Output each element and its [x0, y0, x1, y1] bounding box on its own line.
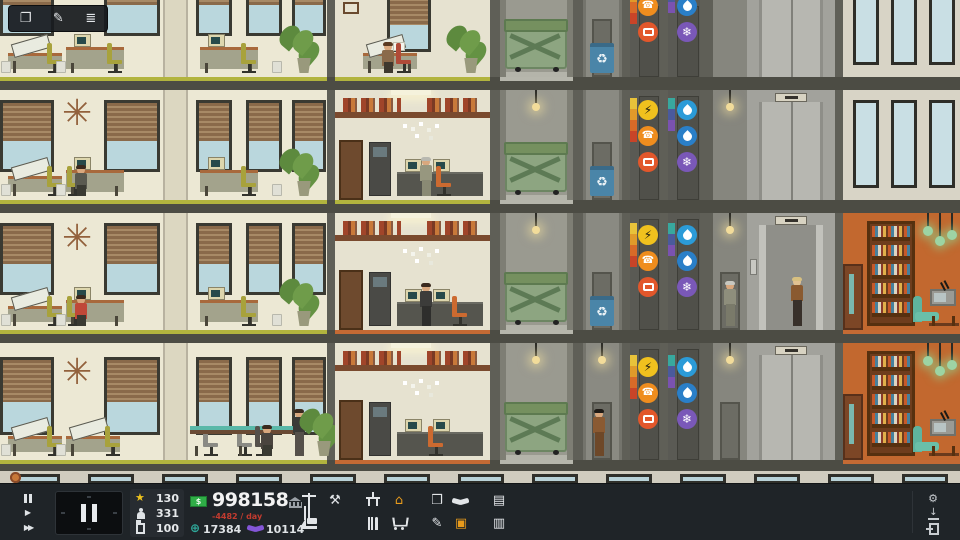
utility-riser-water[interactable]: ❄	[668, 343, 700, 460]
office-door	[339, 270, 363, 330]
ceiling-lamp	[391, 343, 431, 348]
worker-standing[interactable]	[419, 284, 433, 326]
conference-table	[190, 426, 294, 456]
book-row	[872, 302, 910, 317]
cable-tv-icon	[638, 409, 658, 429]
window	[104, 223, 160, 295]
floors-stat[interactable]: 100	[130, 521, 184, 535]
floor-indicator	[775, 346, 807, 355]
water-icon	[677, 100, 697, 120]
partial-floor-below	[0, 471, 960, 483]
palm-plant	[451, 29, 491, 73]
studio-office[interactable]	[335, 0, 490, 77]
utility-stripes	[668, 355, 675, 388]
office-door	[339, 400, 363, 460]
dumpster	[505, 148, 567, 192]
population-stat[interactable]: 331	[130, 506, 184, 520]
book-row	[872, 356, 910, 371]
facade-window	[853, 100, 879, 188]
desk-run	[397, 302, 483, 326]
pause-icon	[24, 494, 32, 503]
water-icon	[677, 225, 697, 245]
power-icon: ⚡	[638, 100, 658, 120]
book-row	[872, 375, 910, 390]
window	[246, 100, 282, 172]
office-chair	[240, 296, 258, 326]
palm-plant	[284, 282, 324, 326]
elevator-call-panel[interactable]	[750, 259, 757, 275]
pendant-light	[951, 213, 953, 231]
book-row	[872, 245, 910, 260]
book-row	[872, 283, 910, 298]
server-cabinet	[369, 142, 391, 196]
utility-icon-stack: ⚡ ☎	[638, 0, 658, 42]
tv-shape	[643, 158, 654, 166]
flame-shape	[681, 0, 694, 12]
leases-button[interactable]: ▤	[488, 492, 510, 509]
bookshelf	[867, 351, 915, 456]
drop-shape	[681, 229, 694, 242]
wheels	[515, 67, 521, 72]
window-glass	[0, 477, 960, 481]
recycling-room[interactable]	[583, 343, 622, 460]
tv-table	[929, 304, 959, 326]
floor-slab	[0, 460, 960, 471]
hanging-bulb	[535, 213, 537, 226]
window	[246, 223, 282, 295]
desk-icon	[366, 494, 380, 506]
legs	[384, 62, 393, 73]
apartment-door	[843, 394, 863, 460]
floor-band-3: ✳	[0, 213, 960, 330]
trash-bin	[272, 314, 282, 326]
water-icon	[677, 357, 697, 377]
legs	[77, 315, 86, 326]
window	[246, 357, 282, 435]
crane-icon	[302, 493, 316, 507]
office-suite[interactable]	[188, 213, 327, 330]
book-row	[872, 413, 910, 428]
books	[343, 221, 401, 235]
game-screen: ♻ ⚡ ☎ ❄	[0, 0, 960, 540]
residential-button[interactable]: ⌂	[388, 492, 410, 509]
game-clock[interactable]	[55, 491, 123, 535]
server-cabinet	[369, 402, 391, 456]
influence-value: 17384	[203, 523, 241, 536]
legs	[422, 180, 431, 196]
balance-value: 998158	[212, 489, 288, 511]
legs	[726, 304, 735, 326]
apartment[interactable]	[843, 213, 960, 330]
handshake-icon	[452, 496, 469, 506]
facade-window	[853, 0, 879, 65]
wheels	[515, 320, 521, 325]
floor-slab	[0, 77, 960, 90]
window	[246, 0, 282, 36]
worker-walking[interactable]	[592, 410, 606, 456]
floor-indicator	[775, 93, 807, 102]
pause-button[interactable]	[20, 492, 36, 504]
prestige-value: 130	[156, 492, 179, 505]
utility-riser-water[interactable]: ❄	[668, 90, 700, 200]
recycling-room[interactable]: ♻	[583, 90, 622, 200]
office-chair	[240, 166, 258, 196]
utility-riser-power[interactable]: ⚡ ☎	[630, 90, 660, 200]
office-suite[interactable]: ✳	[0, 213, 163, 330]
phone-icon: ☎	[638, 383, 658, 403]
monitor	[208, 34, 225, 47]
trash-bin	[56, 184, 66, 196]
elevator-doors	[759, 0, 823, 77]
building-facade	[843, 0, 960, 77]
utility-riser-power[interactable]: ⚡ ☎	[630, 213, 660, 330]
bottom-toolbar: ▶ ▶▶ ★ 130 331 100 $ 998158	[0, 483, 960, 540]
wall-pillar	[163, 343, 188, 460]
window	[104, 357, 160, 435]
ceiling-lamp	[391, 213, 431, 218]
clock-tick	[87, 496, 91, 498]
sunburst-clock: ✳	[62, 221, 92, 257]
influence-icon: ⊕	[190, 521, 200, 535]
star-icon: ★	[135, 491, 145, 504]
favors-icon	[247, 523, 264, 533]
cart-icon	[392, 517, 406, 530]
monitor	[208, 157, 225, 170]
floor-slab	[0, 330, 960, 343]
tv-shape	[643, 28, 654, 36]
hanging-bulb	[729, 90, 731, 103]
worker-walking[interactable]	[419, 158, 433, 196]
elevator-shaft[interactable]	[747, 343, 835, 460]
utility-icon-stack: ⚡ ☎	[638, 357, 658, 429]
floor-band-1: ♻ ⚡ ☎ ❄	[0, 0, 960, 77]
conference-room[interactable]	[188, 343, 327, 460]
trash-bin	[1, 61, 11, 73]
window	[196, 223, 232, 295]
floor-slab	[0, 200, 960, 213]
tv-shape	[643, 283, 654, 291]
utility-riser-water[interactable]: ❄	[668, 0, 700, 77]
fork-knife-icon	[367, 517, 379, 530]
torso	[724, 289, 736, 305]
worker-sitting[interactable]	[260, 426, 274, 456]
book-row	[872, 394, 910, 409]
legs	[793, 300, 802, 326]
recycling-room[interactable]: ♻	[583, 0, 622, 77]
torso	[593, 417, 605, 433]
phone-icon: ☎	[638, 126, 658, 146]
utility-riser-power[interactable]: ⚡ ☎	[630, 0, 660, 77]
exit-door-icon	[929, 523, 939, 535]
legs	[263, 445, 272, 456]
window	[0, 223, 54, 295]
trash-bin	[272, 61, 282, 73]
flame-shape	[681, 255, 694, 268]
utility-riser-power[interactable]: ⚡ ☎	[630, 343, 660, 460]
save-button[interactable]: ↓	[922, 505, 944, 522]
flame-shape	[681, 130, 694, 143]
exit-button[interactable]	[922, 521, 944, 538]
clock-tick	[87, 528, 91, 530]
bulldozer-icon	[301, 517, 317, 529]
cash-icon: $	[190, 496, 207, 507]
gas-icon	[677, 251, 697, 271]
worker-sitting[interactable]	[74, 166, 88, 196]
stairwell-door	[720, 402, 740, 460]
copy-floorplan-button[interactable]: ❐	[20, 12, 32, 25]
hanging-bulb	[729, 343, 731, 356]
elevator-passenger[interactable]	[790, 278, 804, 326]
utility-stripes	[630, 355, 637, 399]
legs	[595, 432, 604, 456]
clock-tick	[61, 512, 65, 514]
floor-indicator	[775, 216, 807, 225]
bookshelf	[867, 221, 915, 326]
tv-set	[930, 419, 956, 436]
studio-office[interactable]	[335, 213, 490, 330]
tv-table	[929, 434, 959, 456]
population-value: 331	[156, 507, 179, 520]
book-row	[872, 264, 910, 279]
sticky-notes	[403, 249, 407, 253]
recycle-bin: ♻	[590, 296, 614, 326]
recycling-room[interactable]: ♻	[583, 213, 622, 330]
toolbar-divider	[912, 491, 913, 533]
decor-button[interactable]: ▣	[450, 515, 472, 532]
clock-paused-icon	[81, 504, 97, 522]
office-chair	[106, 43, 124, 73]
dumpster	[505, 25, 567, 69]
gear-icon: ⚙	[928, 492, 938, 505]
worker-sitting[interactable]	[74, 296, 88, 326]
cable-tv-icon	[638, 277, 658, 297]
hanging-bulb	[535, 343, 537, 356]
utility-stripes	[668, 0, 675, 13]
flame-shape	[681, 387, 694, 400]
building-icon	[136, 523, 145, 534]
utility-stripes	[630, 0, 637, 24]
edit-notes-button[interactable]: ✎	[53, 12, 64, 25]
sticky-notes	[403, 124, 407, 128]
books	[343, 351, 401, 365]
ledger-button[interactable]: ≣	[85, 12, 96, 25]
dumpster	[505, 408, 567, 452]
pendant-light	[939, 213, 941, 237]
monitor	[74, 34, 91, 47]
demolish-button[interactable]	[298, 515, 320, 532]
legs	[295, 432, 304, 456]
utility-icon-stack: ❄	[677, 225, 697, 297]
wall-pillar	[163, 0, 188, 77]
power-icon: ⚡	[638, 225, 658, 245]
cable-tv-icon	[638, 152, 658, 172]
office-chair	[451, 296, 469, 326]
contracts-button[interactable]	[450, 492, 472, 509]
supplies-button[interactable]: ❒	[426, 492, 448, 509]
books	[427, 98, 479, 112]
elevator-shaft[interactable]	[747, 0, 835, 77]
torso	[791, 285, 803, 301]
window	[104, 0, 160, 36]
utility-icon-stack: ⚡ ☎	[638, 225, 658, 297]
studio-office[interactable]	[335, 343, 490, 460]
trash-bin	[272, 184, 282, 196]
wheels	[515, 190, 521, 195]
books	[427, 351, 479, 365]
garbage-room[interactable]	[500, 0, 573, 77]
legs	[422, 306, 431, 326]
offices-button[interactable]	[362, 492, 384, 509]
gas-icon	[677, 383, 697, 403]
play-button[interactable]: ▶	[20, 507, 36, 519]
trash-bin	[56, 314, 66, 326]
window	[196, 357, 232, 435]
wheels	[515, 450, 521, 455]
stats-panel: ★ 130 331 100	[130, 489, 184, 537]
pendant-light	[939, 343, 941, 367]
drop-shape	[681, 361, 694, 374]
office-suite[interactable]: ✳	[0, 343, 163, 460]
wall-picture	[343, 2, 359, 14]
monitor	[433, 289, 450, 302]
pendant-light	[927, 343, 929, 357]
save-icon: ↓	[928, 507, 939, 520]
facade-window	[891, 100, 917, 188]
dumpster	[505, 278, 567, 322]
building-facade	[843, 90, 960, 200]
hvac-icon: ❄	[677, 152, 697, 172]
hanging-bulb	[729, 213, 731, 226]
utility-icon-stack: ❄	[677, 0, 697, 42]
elevator-cab-open	[759, 225, 823, 330]
service-column	[713, 213, 747, 330]
garbage-room[interactable]	[500, 343, 573, 460]
daily-change: -4482 / day	[212, 512, 262, 521]
office-door	[339, 140, 363, 200]
hvac-icon: ❄	[677, 409, 697, 429]
pendant-light	[927, 213, 929, 227]
server-cabinet	[369, 272, 391, 326]
trash-bin	[1, 314, 11, 326]
books	[343, 98, 401, 112]
wall-shelf	[335, 112, 490, 118]
wall-pillar	[163, 213, 188, 330]
hanging-bulb	[601, 343, 603, 356]
tv-shape	[643, 415, 654, 423]
floor-band-2: ✳	[0, 90, 960, 200]
monitor	[208, 287, 225, 300]
book-row	[872, 226, 910, 241]
sticky-notes	[403, 381, 407, 385]
palm-plant	[284, 152, 324, 196]
gas-icon	[677, 0, 697, 16]
studio-office[interactable]	[335, 90, 490, 200]
floor-band-4: ✳	[0, 343, 960, 460]
utility-riser-water[interactable]: ❄	[668, 213, 700, 330]
media-button[interactable]: ▥	[488, 515, 510, 532]
facade-window	[891, 0, 917, 65]
office-suite[interactable]	[188, 90, 327, 200]
facade-window	[929, 0, 955, 65]
office-suite[interactable]: ✳	[0, 90, 163, 200]
service-column	[713, 90, 747, 200]
floors-value: 100	[156, 522, 179, 535]
wall-shelf	[335, 365, 490, 371]
money-panel: $ 998158 -4482 / day ⊕ 17384 10114	[190, 489, 310, 537]
garbage-room[interactable]	[500, 213, 573, 330]
wall-pillar	[163, 90, 188, 200]
utility-icon-stack: ❄	[677, 100, 697, 172]
trash-bin	[1, 184, 11, 196]
elevator-doors	[759, 102, 823, 200]
utilities-button[interactable]: ⚒	[324, 492, 346, 509]
gas-icon	[677, 126, 697, 146]
apartment[interactable]	[843, 343, 960, 460]
elevator-doors	[759, 355, 823, 460]
paint-button[interactable]: ✎	[426, 515, 448, 532]
pendant-light	[951, 343, 953, 361]
dartboard	[10, 472, 21, 483]
prestige-stat[interactable]: ★ 130	[130, 491, 184, 505]
tenant-walking[interactable]	[723, 282, 737, 326]
clock-tick	[113, 512, 117, 514]
phone-icon: ☎	[638, 0, 658, 16]
service-column	[713, 0, 747, 77]
garbage-room[interactable]	[500, 90, 573, 200]
office-chair	[104, 426, 122, 456]
torso	[420, 291, 432, 307]
utility-stripes	[668, 98, 675, 131]
food-service-button[interactable]	[362, 515, 384, 532]
elevator-shaft[interactable]	[747, 213, 835, 330]
office-chair	[435, 166, 453, 196]
books	[427, 221, 479, 235]
ceiling-lamp	[391, 90, 431, 95]
elevator-shaft[interactable]	[747, 90, 835, 200]
sunburst-clock: ✳	[62, 96, 92, 132]
utility-stripes	[668, 223, 675, 256]
utility-stripes	[630, 223, 637, 267]
person-icon	[137, 508, 145, 519]
trash-bin	[1, 444, 11, 456]
window	[104, 100, 160, 172]
phone-icon: ☎	[638, 251, 658, 271]
palm-plant	[284, 29, 324, 73]
sunburst-clock: ✳	[62, 355, 92, 391]
retail-button[interactable]	[388, 515, 410, 532]
trash-bin	[56, 444, 66, 456]
office-chair	[240, 43, 258, 73]
floor-tools-panel: ❐ ✎ ≣	[8, 5, 108, 32]
office-suite[interactable]	[188, 0, 327, 77]
book-row	[872, 432, 910, 447]
tv-set	[930, 289, 956, 306]
fast-forward-button[interactable]: ▶▶	[20, 522, 36, 534]
hanging-bulb	[535, 90, 537, 103]
power-icon: ⚡	[638, 357, 658, 377]
recycle-bin: ♻	[590, 43, 614, 73]
hvac-icon: ❄	[677, 22, 697, 42]
construction-button[interactable]	[298, 492, 320, 509]
wall-shelf	[335, 235, 490, 241]
monitor	[405, 419, 422, 432]
cable-tv-icon	[638, 22, 658, 42]
trash-bin	[56, 61, 66, 73]
utility-icon-stack: ⚡ ☎	[638, 100, 658, 172]
utility-stripes	[630, 98, 637, 142]
office-chair	[427, 426, 445, 456]
torso	[420, 165, 432, 181]
